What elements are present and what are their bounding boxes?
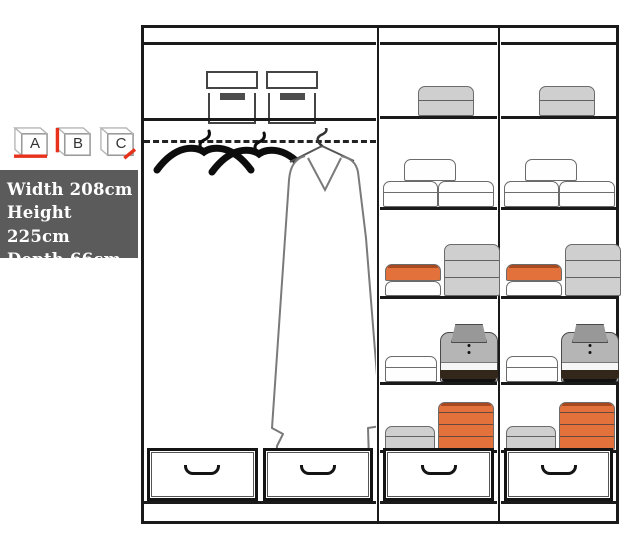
top-panel [380, 28, 497, 45]
drawer-handle-icon [541, 465, 577, 475]
drawer[interactable] [263, 448, 374, 501]
fold-seam [439, 192, 493, 193]
box-lid [266, 71, 318, 89]
top-panel [501, 28, 616, 45]
fold-seam [386, 367, 436, 368]
box-handle-slot [280, 93, 305, 100]
fold-seam [507, 367, 557, 368]
folded-layer-white [562, 362, 618, 370]
fold-seam [384, 192, 437, 193]
section-b-shelves [380, 28, 497, 521]
folded-clothes-white [385, 281, 441, 296]
folded-polo-shirt [561, 324, 619, 382]
polo-button [589, 344, 592, 347]
drawer-handle-icon [300, 465, 336, 475]
fold-top-edge [388, 265, 438, 268]
shelf-cells [380, 45, 497, 453]
folded-clothes-gray [539, 86, 595, 116]
section-c-shelves [501, 28, 616, 521]
cube-label: C [111, 135, 131, 152]
folded-clothes-orange [438, 402, 494, 450]
cube-label: A [25, 135, 45, 152]
shelf-cell-1 [380, 45, 497, 119]
folded-clothes-gray [444, 244, 500, 296]
dimension-width: Width 208cm [7, 178, 138, 201]
folded-layer-black [442, 379, 496, 382]
fold-seam [445, 260, 499, 261]
plinth [144, 501, 376, 521]
fold-seam [439, 412, 493, 413]
polo-button [468, 344, 471, 347]
folded-clothes-white [506, 356, 558, 382]
shelf-cell-1 [501, 45, 616, 119]
drawer-handle-icon [184, 465, 220, 475]
fold-seam [445, 277, 499, 278]
dimensions-panel: Width 208cm Height 225cm Depth 66cm [0, 170, 138, 258]
fold-seam [540, 100, 594, 101]
wardrobe-frame [141, 25, 619, 524]
shelf-cell-2 [380, 119, 497, 210]
shelf-cell-3 [380, 210, 497, 299]
section-a-hanging [144, 28, 376, 521]
shelf-cell-4 [380, 299, 497, 385]
storage-box [206, 71, 258, 124]
folded-clothes-white [438, 181, 494, 207]
folded-clothes-white [504, 181, 559, 207]
folded-layer-black [563, 379, 617, 382]
box-handle-slot [220, 93, 245, 100]
fold-seam [560, 436, 614, 437]
wardrobe-diagram: A B C Width 208cm Height 225cm Depth 66c… [0, 0, 633, 537]
fold-seam [560, 424, 614, 425]
polo-button [468, 351, 471, 354]
fold-seam [560, 192, 614, 193]
dimension-depth: Depth 66cm [7, 248, 138, 271]
shelf-cell-4 [501, 299, 616, 385]
drawer-zone [383, 448, 494, 501]
folded-clothes-white [525, 159, 577, 181]
folded-clothes-gray [506, 426, 556, 450]
shelf-board [144, 118, 376, 121]
fold-top-edge [562, 403, 612, 406]
drawer[interactable] [504, 448, 613, 501]
fold-seam [560, 412, 614, 413]
drawer-handle-icon [421, 465, 457, 475]
cube-label: B [68, 135, 88, 152]
folded-clothes-orange [385, 264, 441, 281]
plinth [380, 501, 497, 521]
drawer[interactable] [147, 448, 258, 501]
folded-layer-brown [440, 370, 498, 379]
drawer[interactable] [383, 448, 494, 501]
polo-collar [451, 324, 487, 343]
box-lid [206, 71, 258, 89]
drawer-zone [147, 448, 373, 501]
folded-layer-white [441, 362, 497, 370]
hanger-hook-icon [318, 128, 327, 146]
fold-seam [566, 260, 620, 261]
fold-seam [507, 436, 555, 437]
hangers-and-garment [144, 128, 376, 468]
shelf-cell-3 [501, 210, 616, 299]
folded-clothes-white [506, 281, 562, 296]
fold-seam [439, 424, 493, 425]
wardrobe-section-cube-b: B [55, 126, 94, 164]
fold-seam [566, 277, 620, 278]
shelf-cells [501, 45, 616, 453]
folded-layer-brown [561, 370, 619, 379]
section-cubes: A B C [12, 126, 138, 164]
fold-top-edge [441, 403, 491, 406]
folded-polo-shirt [440, 324, 498, 382]
folded-clothes-white [404, 159, 456, 181]
folded-clothes-white [383, 181, 438, 207]
fold-seam [386, 436, 434, 437]
long-coat [272, 156, 376, 460]
plinth [501, 501, 616, 521]
top-panel [144, 28, 376, 45]
fold-seam [505, 192, 558, 193]
folded-clothes-gray [385, 426, 435, 450]
shelf-cell-5 [380, 385, 497, 453]
folded-clothes-gray [418, 86, 474, 116]
polo-button [589, 351, 592, 354]
folded-clothes-gray [565, 244, 621, 296]
folded-clothes-orange [559, 402, 615, 450]
folded-clothes-orange [506, 264, 562, 281]
drawer-zone [504, 448, 613, 501]
storage-box [266, 71, 318, 124]
dimension-height: Height 225cm [7, 201, 138, 248]
shelf-cell-5 [501, 385, 616, 453]
folded-clothes-white [559, 181, 615, 207]
fold-top-edge [509, 265, 559, 268]
wardrobe-section-cube-a: A [12, 126, 51, 164]
polo-collar [572, 324, 608, 343]
wardrobe-section-cube-c: C [98, 126, 137, 164]
shelf-cell-2 [501, 119, 616, 210]
fold-seam [439, 436, 493, 437]
fold-seam [419, 100, 473, 101]
folded-clothes-white [385, 356, 437, 382]
